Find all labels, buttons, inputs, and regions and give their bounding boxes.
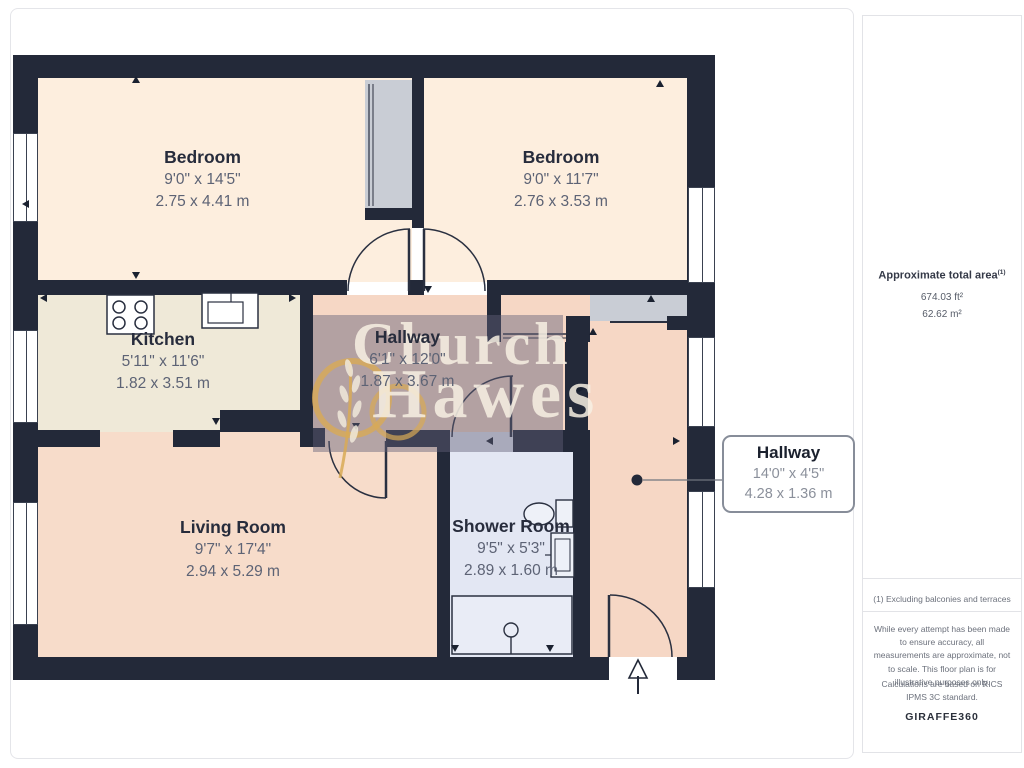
- total-area-title-text: Approximate total area: [878, 270, 997, 282]
- room-dim-imperial: 9'0" x 14'5": [60, 169, 345, 191]
- room-name: Bedroom: [60, 146, 345, 169]
- room-dim-metric: 2.75 x 4.41 m: [60, 191, 345, 213]
- room-name: Bedroom: [435, 146, 687, 169]
- room-dim-metric: 1.82 x 3.51 m: [50, 373, 276, 395]
- label-kitchen: Kitchen 5'11" x 11'6" 1.82 x 3.51 m: [50, 328, 276, 395]
- room-name: Kitchen: [50, 328, 276, 351]
- brand-name: GIRAFFE: [905, 711, 958, 723]
- room-dim-imperial: 9'7" x 17'4": [85, 539, 381, 561]
- callout-dim-imperial: 14'0" x 4'5": [726, 465, 851, 485]
- room-dim-metric: 2.76 x 3.53 m: [435, 191, 687, 213]
- sidebar-divider-1: [863, 578, 1021, 579]
- label-bedroom-2: Bedroom 9'0" x 11'7" 2.76 x 3.53 m: [435, 146, 687, 213]
- hallway-callout: Hallway 14'0" x 4'5" 4.28 x 1.36 m: [722, 435, 855, 513]
- brand-logo: GIRAFFE360: [863, 711, 1021, 723]
- callout-dim-metric: 4.28 x 1.36 m: [726, 485, 851, 505]
- label-bedroom-1: Bedroom 9'0" x 14'5" 2.75 x 4.41 m: [60, 146, 345, 213]
- room-dim-metric: 1.87 x 3.67 m: [305, 371, 510, 393]
- room-dim-metric: 2.89 x 1.60 m: [432, 560, 590, 582]
- room-name: Hallway: [305, 326, 510, 349]
- label-shower-room: Shower Room 9'5" x 5'3" 2.89 x 1.60 m: [432, 515, 590, 582]
- total-area-m: 62.62 m²: [863, 309, 1021, 320]
- floorplan-page: Church Hawes Bedroom 9'0" x 14'5" 2.75 x…: [0, 0, 1024, 768]
- room-dim-imperial: 9'0" x 11'7": [435, 169, 687, 191]
- room-dim-imperial: 9'5" x 5'3": [432, 538, 590, 560]
- label-living-room: Living Room 9'7" x 17'4" 2.94 x 5.29 m: [85, 516, 381, 583]
- room-name: Living Room: [85, 516, 381, 539]
- standard-text: Calculations are based on RICS IPMS 3C s…: [863, 678, 1021, 704]
- room-name: Shower Room: [432, 515, 590, 538]
- info-sidebar: Approximate total area(1) 674.03 ft² 62.…: [862, 15, 1022, 753]
- callout-name: Hallway: [726, 442, 851, 465]
- room-dim-metric: 2.94 x 5.29 m: [85, 561, 381, 583]
- brand-suffix: 360: [958, 711, 979, 723]
- room-dim-imperial: 6'1" x 12'0": [305, 349, 510, 371]
- sidebar-divider-2: [863, 611, 1021, 612]
- room-dim-imperial: 5'11" x 11'6": [50, 351, 276, 373]
- total-area-footnote-marker: (1): [998, 269, 1006, 276]
- footnote-text: (1) Excluding balconies and terraces: [863, 594, 1021, 604]
- total-area-title: Approximate total area(1): [863, 269, 1021, 282]
- label-hallway: Hallway 6'1" x 12'0" 1.87 x 3.67 m: [305, 326, 510, 393]
- total-area-ft: 674.03 ft²: [863, 292, 1021, 303]
